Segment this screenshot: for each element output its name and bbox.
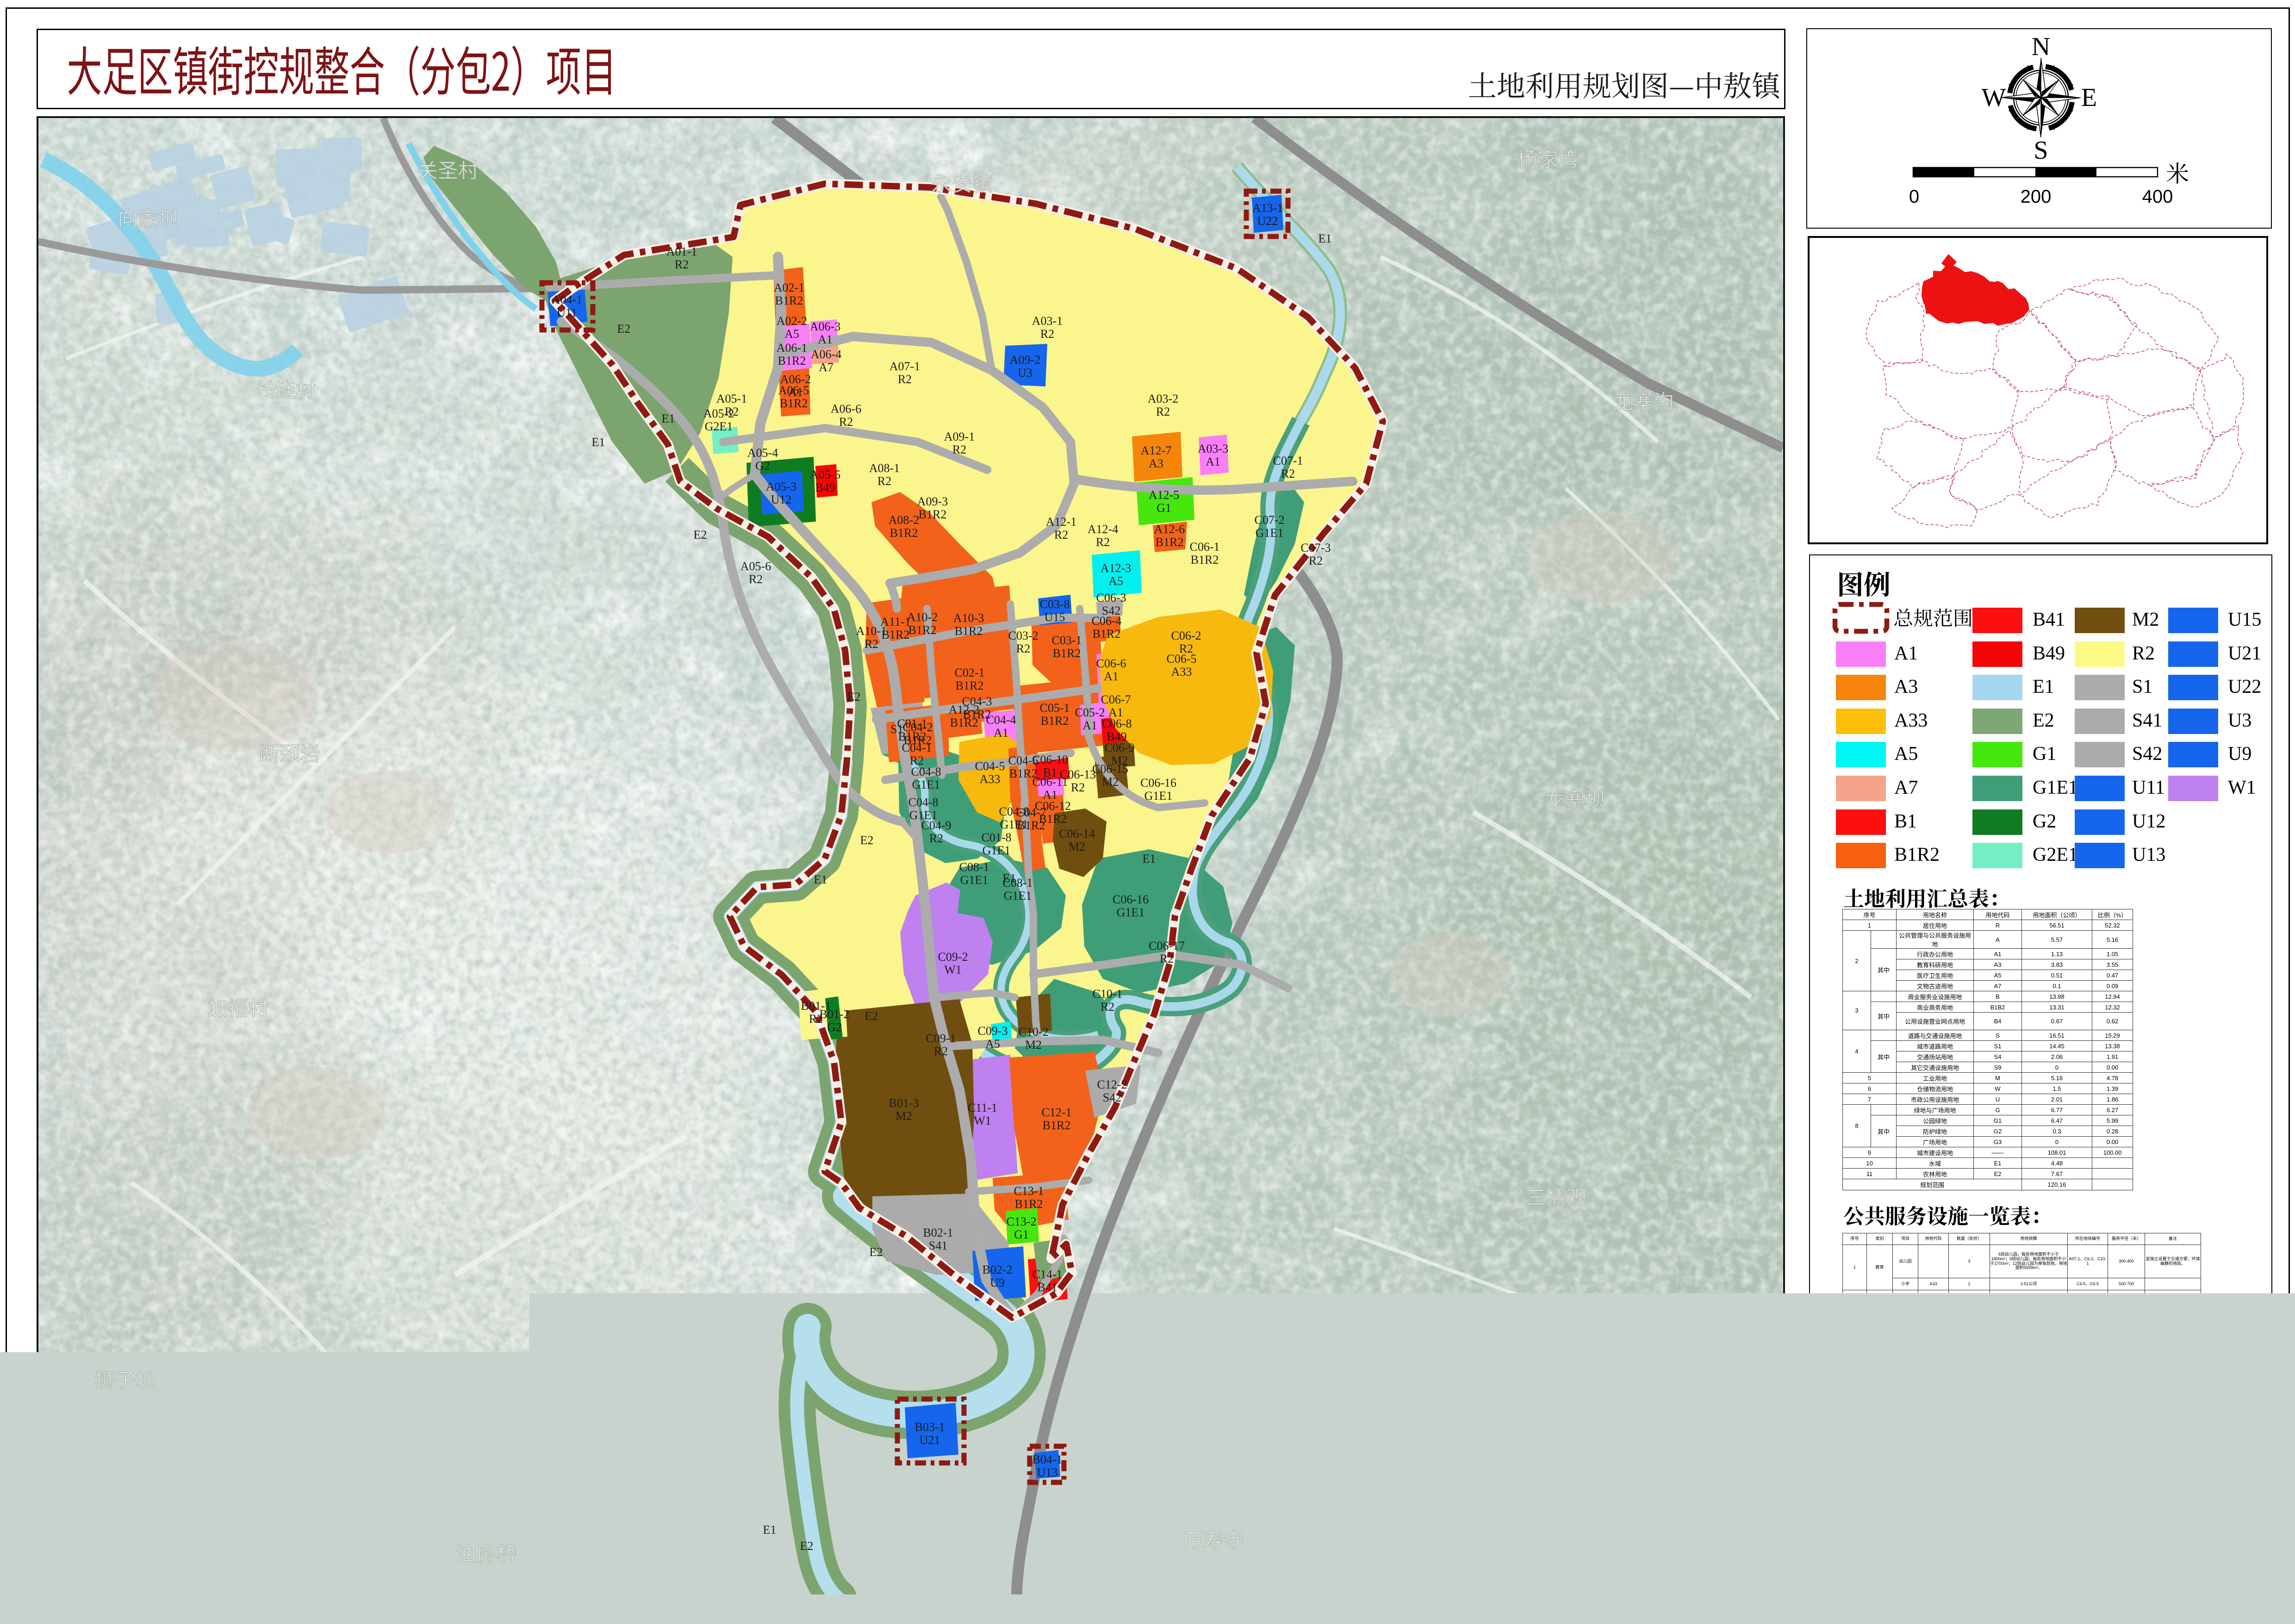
svg-text:C04-3: C04-3 [962, 695, 992, 708]
svg-text:400: 400 [2142, 187, 2173, 207]
svg-text:A06-6: A06-6 [831, 402, 861, 416]
svg-text:A02-1: A02-1 [774, 281, 804, 294]
svg-text:C05-2: C05-2 [1075, 706, 1105, 719]
svg-text:B1R2: B1R2 [1017, 819, 1045, 832]
svg-text:C06-4: C06-4 [1092, 614, 1122, 628]
svg-text:U15: U15 [1045, 610, 1065, 624]
svg-text:A05-5: A05-5 [810, 468, 840, 481]
svg-text:B41: B41 [1037, 1281, 1057, 1294]
svg-text:U12: U12 [771, 493, 792, 506]
svg-text:M2: M2 [1102, 775, 1119, 789]
svg-text:E2: E2 [870, 1245, 883, 1259]
svg-text:A1: A1 [994, 726, 1008, 740]
svg-text:C03-1: C03-1 [1052, 634, 1082, 647]
svg-text:B49: B49 [815, 481, 835, 494]
svg-text:C06-16: C06-16 [1113, 893, 1149, 906]
svg-text:B04-1: B04-1 [1032, 1453, 1063, 1466]
svg-text:R2: R2 [1071, 781, 1085, 794]
svg-text:G1E1: G1E1 [1144, 789, 1173, 803]
svg-text:S42: S42 [1103, 1091, 1121, 1104]
svg-text:E2: E2 [800, 1539, 814, 1553]
svg-text:C08-1: C08-1 [959, 860, 989, 874]
svg-text:C07-3: C07-3 [1301, 541, 1331, 554]
svg-text:W1: W1 [944, 963, 962, 977]
svg-text:C06-6: C06-6 [1096, 657, 1126, 670]
svg-text:R2: R2 [1156, 405, 1170, 418]
svg-text:B1R2: B1R2 [919, 508, 947, 521]
svg-text:B1R2: B1R2 [1053, 647, 1081, 660]
svg-text:A02-2: A02-2 [777, 314, 807, 328]
svg-text:B02-1: B02-1 [923, 1226, 953, 1239]
svg-text:R2: R2 [1054, 528, 1068, 541]
svg-text:A06-5: A06-5 [778, 384, 809, 397]
svg-text:C12-1: C12-1 [1042, 1106, 1072, 1119]
svg-text:E1: E1 [814, 873, 827, 886]
svg-text:R2: R2 [1160, 952, 1174, 965]
svg-text:R2: R2 [1040, 327, 1054, 341]
svg-text:C06-13: C06-13 [1060, 768, 1096, 781]
svg-text:G1E1: G1E1 [1004, 889, 1032, 902]
svg-text:G1E1: G1E1 [1256, 526, 1284, 540]
svg-text:U21: U21 [920, 1433, 940, 1447]
svg-text:C09-3: C09-3 [978, 1024, 1008, 1038]
svg-text:R2: R2 [1101, 1000, 1114, 1014]
svg-text:U9: U9 [990, 1276, 1005, 1289]
svg-text:A05-2: A05-2 [703, 407, 734, 420]
svg-text:E1: E1 [592, 436, 605, 449]
svg-text:A03-1: A03-1 [1032, 314, 1063, 328]
svg-text:U13: U13 [1037, 1466, 1058, 1479]
svg-text:M2: M2 [1025, 1038, 1042, 1052]
svg-text:C09-2: C09-2 [938, 950, 968, 964]
svg-text:A33: A33 [980, 772, 1001, 786]
svg-text:C14-1: C14-1 [1032, 1268, 1063, 1281]
svg-text:U11: U11 [557, 306, 577, 319]
svg-text:S: S [2034, 136, 2048, 165]
svg-text:200: 200 [2021, 187, 2052, 207]
svg-text:A5: A5 [784, 327, 799, 341]
svg-text:A1: A1 [1206, 455, 1220, 468]
svg-text:A09-2: A09-2 [1010, 353, 1040, 367]
svg-text:B1R2: B1R2 [882, 628, 910, 641]
svg-text:R2: R2 [839, 415, 853, 429]
svg-text:R2: R2 [877, 474, 891, 488]
svg-text:A08-2: A08-2 [889, 513, 919, 527]
svg-text:C04-4: C04-4 [986, 713, 1016, 727]
svg-text:A1: A1 [1082, 719, 1097, 732]
svg-text:B03-1: B03-1 [915, 1420, 945, 1434]
svg-text:C04-1: C04-1 [902, 741, 932, 754]
svg-text:C06-2: C06-2 [1171, 629, 1201, 642]
svg-text:B1R2: B1R2 [1041, 714, 1069, 728]
svg-text:E: E [2081, 83, 2097, 112]
svg-text:R2: R2 [675, 258, 689, 271]
svg-text:A5: A5 [985, 1037, 1000, 1051]
svg-text:E2: E2 [860, 834, 874, 847]
svg-text:B1R2: B1R2 [1191, 553, 1219, 566]
svg-text:M2: M2 [896, 1109, 912, 1123]
svg-text:B1R2: B1R2 [1043, 1119, 1071, 1132]
svg-text:R2: R2 [934, 1045, 948, 1058]
svg-text:R2: R2 [898, 373, 912, 386]
svg-text:A03-3: A03-3 [1198, 442, 1228, 455]
svg-text:A10-2: A10-2 [907, 610, 938, 624]
svg-text:G2: G2 [755, 459, 770, 473]
svg-text:C11-1: C11-1 [968, 1101, 997, 1114]
svg-text:C06-10: C06-10 [1032, 753, 1068, 766]
svg-text:A1: A1 [1104, 670, 1119, 683]
svg-text:B1R2: B1R2 [956, 679, 984, 692]
svg-text:A5: A5 [1108, 574, 1123, 588]
svg-text:R2: R2 [952, 443, 966, 456]
svg-text:A11-1: A11-1 [880, 615, 910, 628]
svg-text:B1R2: B1R2 [955, 624, 983, 638]
svg-text:E1: E1 [763, 1523, 777, 1537]
svg-text:C06-14: C06-14 [1059, 827, 1095, 840]
svg-text:G1E1: G1E1 [983, 844, 1011, 857]
svg-text:C12-2: C12-2 [1097, 1078, 1127, 1091]
svg-text:C13-2: C13-2 [1007, 1215, 1037, 1228]
svg-text:A7: A7 [819, 361, 833, 374]
svg-text:C01-8: C01-8 [982, 831, 1012, 844]
svg-text:C09-1: C09-1 [926, 1032, 956, 1045]
svg-text:B1R2: B1R2 [890, 526, 918, 540]
svg-text:C02-1: C02-1 [955, 666, 985, 679]
svg-text:A04-1: A04-1 [552, 293, 582, 306]
svg-text:A12-7: A12-7 [1141, 444, 1171, 457]
svg-text:G1: G1 [1157, 501, 1171, 515]
svg-text:W1: W1 [974, 1114, 991, 1127]
svg-text:G2E1: G2E1 [705, 420, 733, 433]
svg-text:A09-1: A09-1 [944, 430, 975, 443]
svg-text:E1: E1 [1319, 232, 1332, 245]
svg-text:A05-4: A05-4 [747, 446, 778, 460]
svg-text:B1R2: B1R2 [908, 623, 937, 637]
svg-text:B1R2: B1R2 [780, 397, 808, 410]
svg-text:A3: A3 [1149, 457, 1163, 470]
svg-text:B01-3: B01-3 [889, 1096, 919, 1110]
svg-text:0: 0 [1909, 187, 1919, 207]
svg-text:R2: R2 [749, 572, 763, 586]
svg-text:U22: U22 [1257, 214, 1278, 228]
svg-text:G1E1: G1E1 [1117, 906, 1145, 919]
svg-text:C10-2: C10-2 [1019, 1025, 1049, 1039]
svg-text:B1R2: B1R2 [775, 294, 803, 307]
svg-text:A03-2: A03-2 [1148, 392, 1178, 405]
svg-text:B02-2: B02-2 [983, 1263, 1013, 1276]
svg-text:S41: S41 [929, 1239, 947, 1252]
svg-text:B1R2: B1R2 [778, 354, 806, 367]
svg-text:C04-5: C04-5 [975, 759, 1005, 773]
svg-text:A06-4: A06-4 [811, 348, 841, 361]
svg-text:W: W [1982, 83, 2006, 112]
svg-text:A10-3: A10-3 [953, 611, 984, 625]
svg-text:C06-1: C06-1 [1190, 540, 1220, 554]
svg-text:C06-9: C06-9 [1105, 741, 1135, 754]
svg-text:A08-1: A08-1 [869, 461, 900, 475]
svg-text:E2: E2 [694, 528, 707, 541]
svg-text:G1E1: G1E1 [912, 778, 940, 791]
svg-text:C04-2: C04-2 [903, 721, 933, 734]
svg-text:C07-2: C07-2 [1255, 513, 1285, 527]
svg-text:A05-1: A05-1 [716, 392, 747, 405]
svg-text:B1R2: B1R2 [1093, 627, 1121, 641]
svg-text:A12-1: A12-1 [1046, 515, 1076, 529]
svg-text:E2: E2 [847, 690, 861, 703]
svg-text:A06-1: A06-1 [777, 341, 807, 355]
svg-text:C04-8: C04-8 [911, 765, 941, 778]
svg-text:B01-2: B01-2 [820, 1008, 850, 1021]
svg-text:A12-4: A12-4 [1088, 523, 1118, 536]
svg-text:A06-3: A06-3 [810, 320, 840, 333]
svg-text:U3: U3 [1018, 366, 1032, 380]
svg-text:C05-1: C05-1 [1040, 701, 1070, 715]
svg-text:G2: G2 [827, 1020, 842, 1034]
svg-text:G1E1: G1E1 [960, 873, 989, 887]
svg-text:C04-8: C04-8 [908, 796, 939, 809]
svg-text:A12-3: A12-3 [1101, 561, 1131, 575]
svg-text:C06-8: C06-8 [1102, 717, 1132, 730]
svg-text:A12-6: A12-6 [1154, 523, 1185, 536]
svg-text:E1: E1 [1143, 852, 1156, 865]
svg-text:E2: E2 [617, 322, 631, 336]
svg-text:C08-1: C08-1 [1003, 876, 1033, 890]
svg-text:A09-3: A09-3 [917, 495, 948, 508]
svg-text:A05-6: A05-6 [740, 560, 771, 573]
svg-text:A01-1: A01-1 [666, 245, 697, 258]
svg-text:C04-7: C04-7 [1016, 806, 1046, 819]
svg-text:B1R2: B1R2 [1156, 535, 1184, 549]
svg-text:G1: G1 [1014, 1228, 1029, 1241]
svg-text:A1: A1 [818, 333, 833, 346]
svg-text:C03-8: C03-8 [1040, 597, 1070, 611]
svg-text:C06-17: C06-17 [1149, 939, 1185, 952]
svg-text:C06-7: C06-7 [1101, 693, 1131, 706]
svg-text:R2: R2 [1096, 535, 1110, 549]
svg-text:E1: E1 [662, 412, 675, 425]
svg-text:C03-2: C03-2 [1008, 629, 1039, 642]
svg-text:C06-3: C06-3 [1096, 591, 1126, 604]
svg-text:A05-3: A05-3 [766, 480, 796, 493]
svg-text:B1R2: B1R2 [1015, 1197, 1043, 1211]
svg-text:A13-1: A13-1 [1252, 201, 1283, 215]
svg-text:A12-5: A12-5 [1149, 488, 1179, 502]
svg-text:E2: E2 [865, 1009, 878, 1023]
svg-text:R2: R2 [1281, 467, 1295, 480]
svg-text:A33: A33 [1171, 665, 1192, 678]
svg-text:C13-1: C13-1 [1014, 1184, 1044, 1198]
svg-text:R2: R2 [1016, 642, 1030, 655]
svg-text:N: N [2032, 32, 2050, 61]
svg-text:A07-1: A07-1 [889, 360, 920, 373]
svg-text:C06-5: C06-5 [1167, 652, 1197, 666]
svg-text:C04-9: C04-9 [921, 819, 952, 832]
svg-text:C10-1: C10-1 [1093, 987, 1123, 1001]
svg-text:M2: M2 [1069, 840, 1085, 853]
svg-text:R2: R2 [865, 637, 878, 651]
svg-text:C06-16: C06-16 [1140, 776, 1176, 790]
svg-text:R2: R2 [1309, 554, 1323, 567]
svg-text:C07-1: C07-1 [1273, 454, 1303, 467]
svg-text:C06-15: C06-15 [1092, 762, 1128, 776]
svg-text:R2: R2 [929, 832, 943, 845]
